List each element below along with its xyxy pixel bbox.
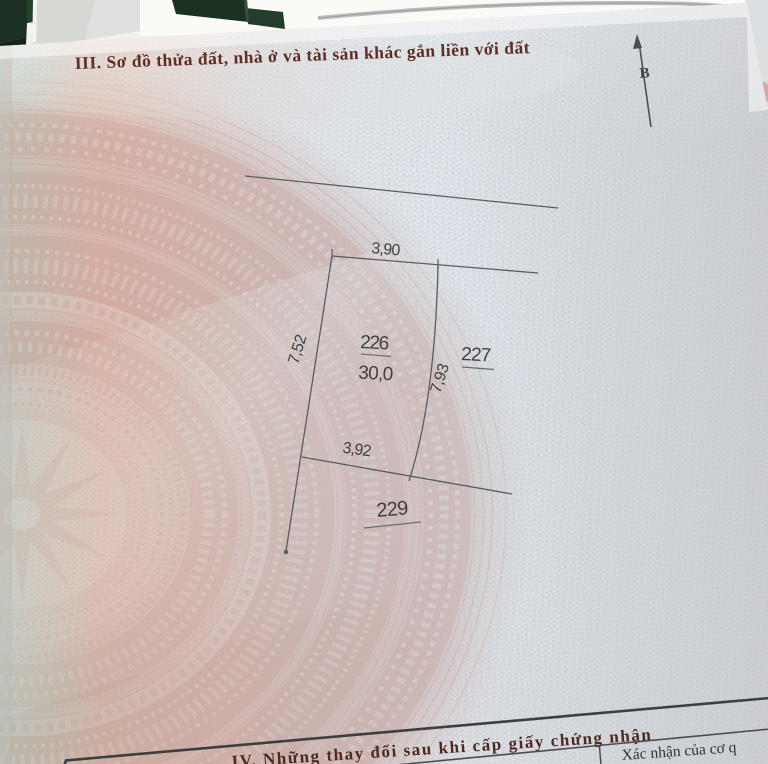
svg-text:3,90: 3,90 (371, 240, 401, 259)
svg-text:226: 226 (360, 332, 390, 354)
svg-text:B: B (639, 65, 650, 82)
svg-text:227: 227 (461, 344, 492, 367)
svg-text:229: 229 (376, 497, 410, 522)
svg-text:30,0: 30,0 (358, 363, 394, 386)
